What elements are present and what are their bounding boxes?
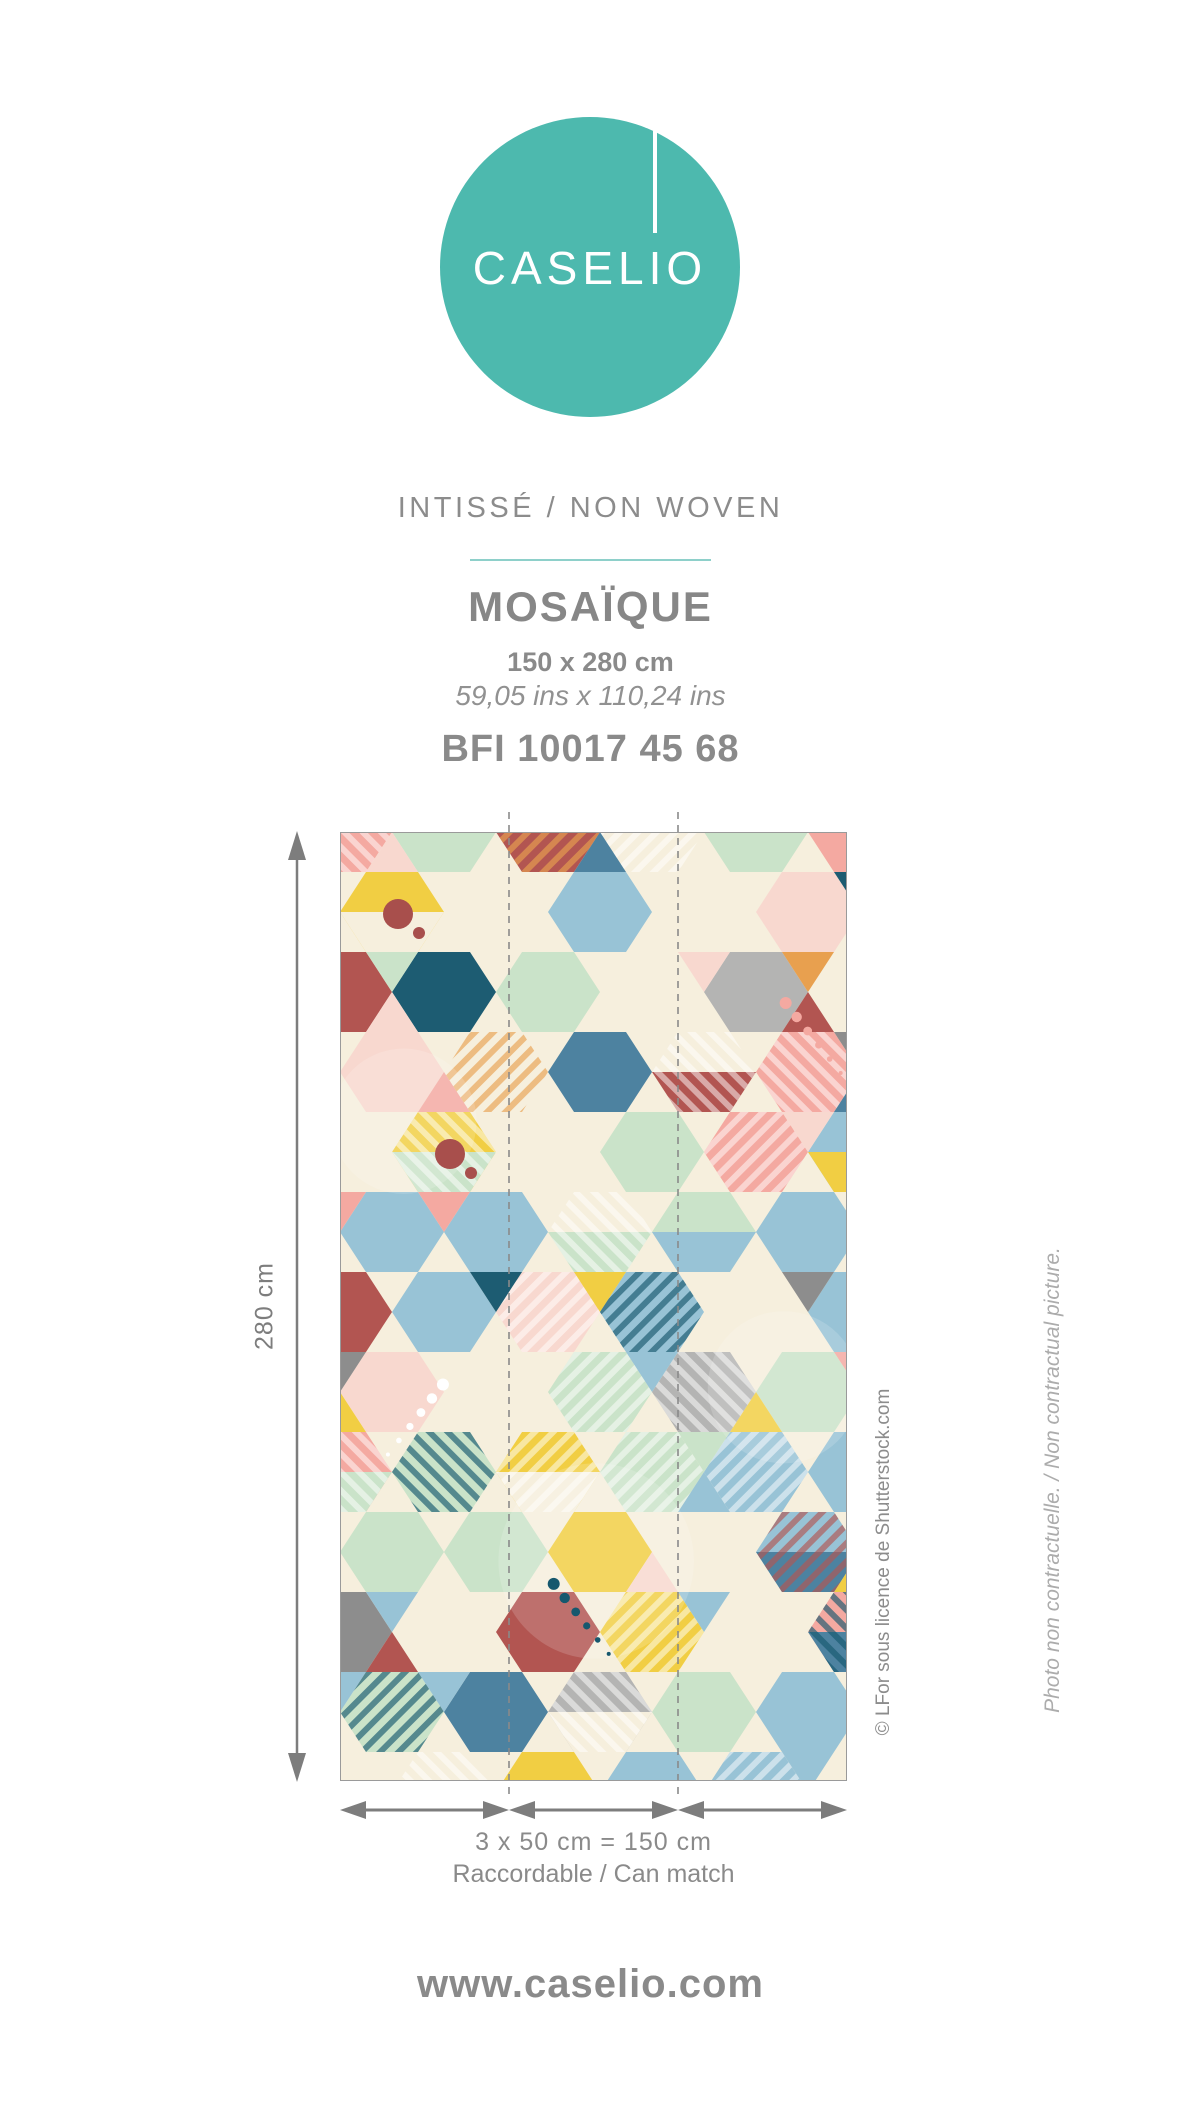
- wallpaper-preview: [340, 812, 847, 1817]
- dimensions-inches: 59,05 ins x 110,24 ins: [0, 680, 1181, 712]
- website-link: www.caselio.com: [0, 1962, 1181, 2007]
- dimensions-cm: 150 x 280 cm: [0, 647, 1181, 678]
- product-reference: BFI 10017 45 68: [0, 728, 1181, 771]
- photo-credit: © LFor sous licence de Shutterstock.com: [873, 1389, 895, 1736]
- product-sheet: CASELIO INTISSÉ / NON WOVEN MOSAÏQUE 150…: [0, 0, 1181, 2126]
- product-title: MOSAÏQUE: [0, 583, 1181, 631]
- height-label: 280 cm: [251, 1262, 280, 1350]
- logo-stem-line: [653, 131, 657, 233]
- brand-logo: CASELIO: [440, 117, 740, 417]
- disclaimer-text: Photo non contractuelle. / Non contractu…: [1041, 1247, 1065, 1713]
- material-heading: INTISSÉ / NON WOVEN: [0, 492, 1181, 525]
- brand-text: CASELIO: [440, 241, 740, 295]
- height-arrow: [284, 830, 310, 1783]
- teal-divider: [470, 559, 711, 561]
- match-label: Raccordable / Can match: [340, 1860, 847, 1889]
- width-label: 3 x 50 cm = 150 cm: [340, 1828, 847, 1857]
- width-arrows: [340, 1796, 847, 1826]
